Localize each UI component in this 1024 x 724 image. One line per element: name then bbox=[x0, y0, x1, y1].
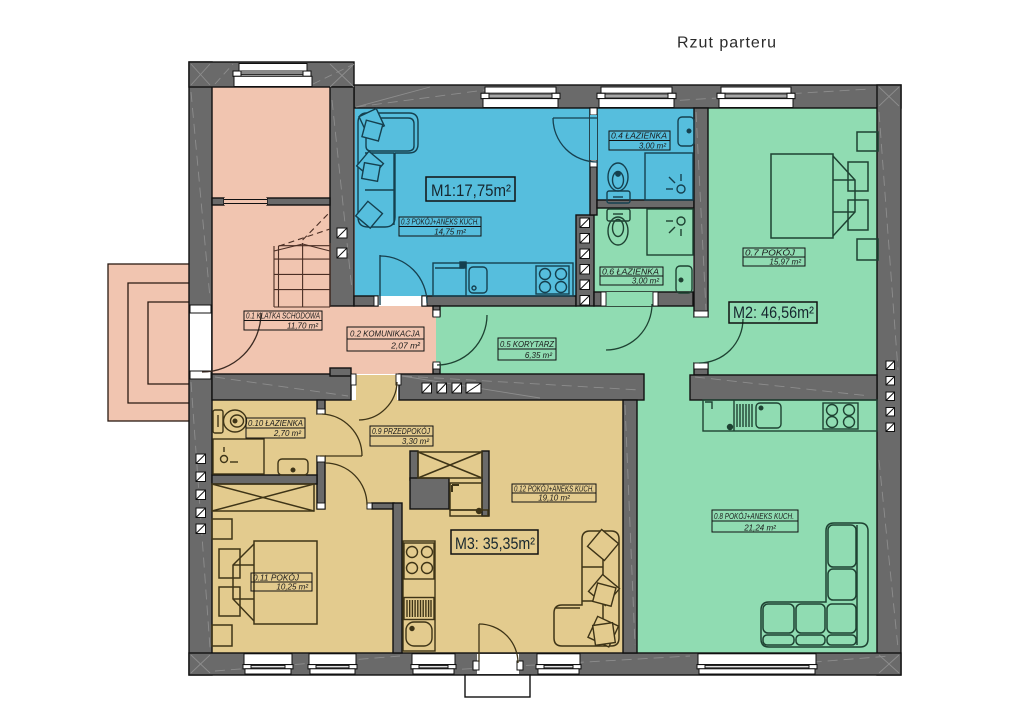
svg-text:0.3 POKÓJ+ANEKS KUCH.: 0.3 POKÓJ+ANEKS KUCH. bbox=[401, 218, 479, 227]
svg-text:6,35 m²: 6,35 m² bbox=[525, 351, 552, 360]
svg-text:10,25 m²: 10,25 m² bbox=[276, 583, 308, 592]
svg-text:21,24 m²: 21,24 m² bbox=[743, 524, 776, 533]
svg-text:11,70 m²: 11,70 m² bbox=[287, 322, 318, 331]
svg-text:M1:17,75m²: M1:17,75m² bbox=[431, 181, 511, 200]
svg-text:0.8 POKÓJ+ANEKS KUCH.: 0.8 POKÓJ+ANEKS KUCH. bbox=[714, 512, 794, 521]
svg-text:0.7 POKÓJ: 0.7 POKÓJ bbox=[745, 249, 796, 258]
svg-text:0.1 KLATKA SCHODOWA: 0.1 KLATKA SCHODOWA bbox=[246, 312, 320, 321]
svg-text:15,97 m²: 15,97 m² bbox=[769, 258, 801, 267]
svg-text:0.10 ŁAZIENKA: 0.10 ŁAZIENKA bbox=[248, 419, 303, 428]
svg-text:0.6 ŁAZIENKA: 0.6 ŁAZIENKA bbox=[602, 268, 659, 277]
svg-text:3,30 m²: 3,30 m² bbox=[402, 437, 429, 446]
svg-text:3,00 m²: 3,00 m² bbox=[632, 277, 659, 286]
svg-text:0.12 POKÓJ+ANEKS KUCH.: 0.12 POKÓJ+ANEKS KUCH. bbox=[514, 485, 594, 494]
svg-text:M2: 46,56m²: M2: 46,56m² bbox=[733, 303, 814, 322]
svg-text:Rzut parteru: Rzut parteru bbox=[677, 35, 777, 52]
svg-text:0.9 PRZEDPOKÓJ: 0.9 PRZEDPOKÓJ bbox=[372, 427, 431, 436]
svg-text:19,10 m²: 19,10 m² bbox=[538, 494, 570, 503]
svg-text:M3: 35,35m²: M3: 35,35m² bbox=[455, 534, 535, 553]
svg-text:0.2 KOMUNIKACJA: 0.2 KOMUNIKACJA bbox=[350, 329, 420, 339]
svg-text:2,07 m²: 2,07 m² bbox=[390, 341, 421, 351]
svg-text:14,75 m²: 14,75 m² bbox=[434, 228, 466, 237]
svg-text:0.11 POKÓJ: 0.11 POKÓJ bbox=[253, 574, 300, 583]
svg-text:0.4 ŁAZIENKA: 0.4 ŁAZIENKA bbox=[611, 132, 667, 141]
svg-text:2,70 m²: 2,70 m² bbox=[273, 429, 301, 438]
svg-text:0.5 KORYTARZ: 0.5 KORYTARZ bbox=[500, 340, 555, 349]
svg-text:3,00 m²: 3,00 m² bbox=[639, 142, 666, 151]
